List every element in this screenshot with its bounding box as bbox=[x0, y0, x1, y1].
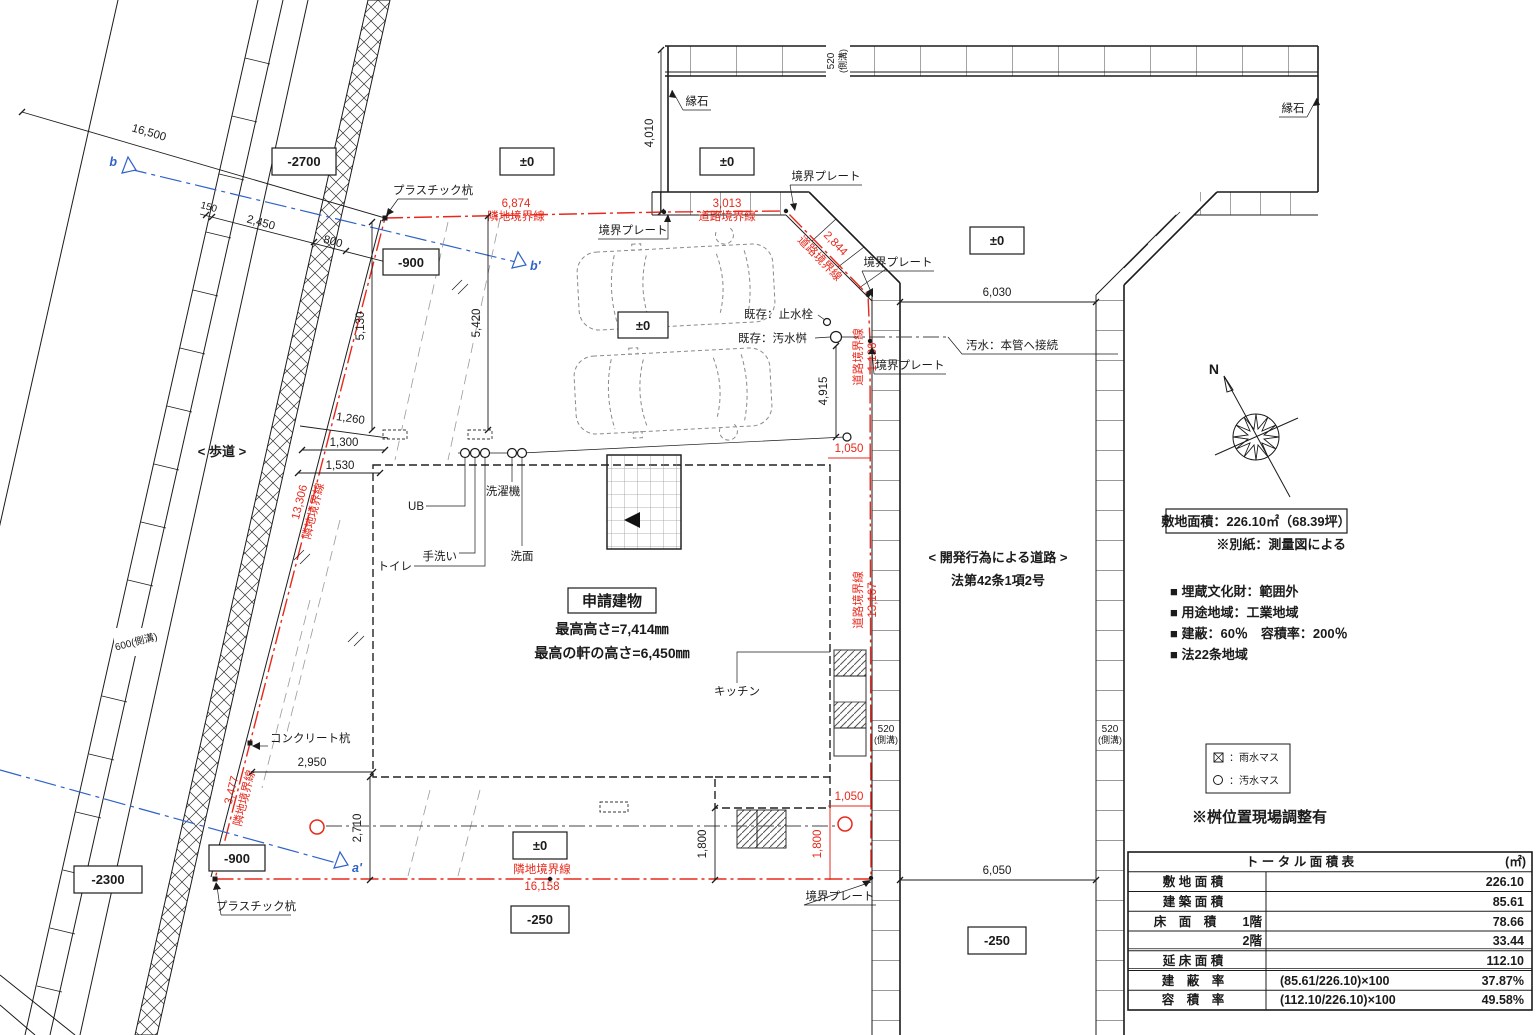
ground-marks bbox=[294, 280, 468, 646]
dim-4010: 4,010 bbox=[644, 119, 656, 148]
label-plate-1: 境界プレート bbox=[599, 223, 668, 237]
label-senmen: 洗面 bbox=[511, 550, 534, 563]
dim-13167: 13,167 bbox=[867, 582, 879, 617]
table-row-label: 敷 地 面 積 bbox=[1163, 874, 1224, 889]
level-box-0: -2700 bbox=[287, 154, 320, 169]
level-box-7: -2300 bbox=[91, 872, 124, 887]
label-tearai: 手洗い bbox=[423, 549, 458, 563]
dim-16158: 16,158 bbox=[524, 881, 559, 893]
gutter-road-left bbox=[872, 288, 900, 1035]
drain-point-toire bbox=[481, 449, 490, 458]
dim-1050-top: 1,050 bbox=[835, 443, 864, 455]
level-box-1: ±0 bbox=[520, 154, 534, 169]
table-row-label: 容 積 率 bbox=[1161, 992, 1225, 1007]
dim-3013: 3,013 bbox=[713, 198, 742, 210]
site-plan-drawing: < 歩道 > 600(側溝) 520 (側溝) 520 (側溝) 520 (側溝… bbox=[0, 0, 1536, 1035]
new-sewage-point bbox=[843, 433, 851, 441]
sewage-manhole-left bbox=[310, 820, 324, 834]
label-curb-left: 縁石 bbox=[686, 94, 709, 108]
drain-point-ub bbox=[461, 449, 470, 458]
table-row-label: 建 蔽 率 bbox=[1162, 973, 1225, 988]
dim-2950: 2,950 bbox=[298, 757, 327, 769]
drain-point-senmen bbox=[518, 449, 527, 458]
wheel-stop-3 bbox=[600, 802, 628, 812]
dim-1050-bottom: 1,050 bbox=[835, 791, 864, 803]
level-box-5: ±0 bbox=[636, 318, 650, 333]
gutter-road-right bbox=[1096, 288, 1124, 1035]
car-outline-1 bbox=[576, 237, 776, 337]
sidewalk-curb-strip bbox=[135, 0, 390, 1035]
drain-point-sentaku bbox=[508, 449, 517, 458]
section-flag-a2 bbox=[334, 852, 348, 868]
notes-group: 敷地面積：226.10㎡（68.39坪） ※別紙：測量図による ■ 埋蔵文化財：… bbox=[1161, 509, 1350, 826]
table-row-value: 78.66 bbox=[1493, 915, 1524, 929]
dim-5130: 5,130 bbox=[355, 312, 367, 341]
level-box-10: -250 bbox=[984, 933, 1010, 948]
table-row-value: 226.10 bbox=[1486, 875, 1524, 889]
dim-16500: 16,500 bbox=[130, 122, 167, 143]
label-toire: トイレ bbox=[378, 561, 413, 573]
dim-6030: 6,030 bbox=[983, 287, 1012, 299]
legend-sewage-label: ：汚水マス bbox=[1229, 774, 1279, 787]
building-height1: 最高高さ=7,414㎜ bbox=[555, 621, 668, 637]
table-row-sub: 2階 bbox=[1243, 933, 1263, 948]
table-row-value: 33.44 bbox=[1493, 934, 1524, 948]
label-sentakuki: 洗濯機 bbox=[486, 484, 521, 498]
entrance-steps bbox=[737, 810, 786, 848]
table-row-label: 延 床 面 積 bbox=[1162, 953, 1224, 968]
dim-1800-red: 1,800 bbox=[812, 830, 824, 859]
table-title: ト ー タ ル 面 積 表 bbox=[1246, 854, 1355, 869]
label-existing-sewage: 既存：汚水桝 bbox=[738, 331, 807, 345]
level-box-3: ±0 bbox=[990, 233, 1004, 248]
site-note-2: ■ 建蔽：60％ 容積率：200％ bbox=[1170, 626, 1348, 641]
section-label-b2: b' bbox=[530, 259, 542, 273]
label-kitchen: キッチン bbox=[714, 685, 760, 698]
label-plate-4: 境界プレート bbox=[876, 358, 945, 372]
sidewalk-label: < 歩道 > bbox=[198, 444, 247, 459]
gutter-right-diagonal bbox=[1096, 192, 1217, 295]
label-development-road: < 開発行為による道路 > bbox=[928, 550, 1067, 565]
building-name: 申請建物 bbox=[582, 592, 642, 610]
compass-group: N bbox=[1209, 361, 1298, 497]
dim-6050: 6,050 bbox=[983, 865, 1012, 877]
sewage-manhole-right bbox=[838, 817, 852, 831]
level-box-2: ±0 bbox=[720, 154, 734, 169]
table-row-value: 85.61 bbox=[1493, 895, 1524, 909]
stake-point-bottom bbox=[213, 877, 218, 882]
label-existing-valve: 既存：止水栓 bbox=[744, 307, 813, 321]
section-flag-b bbox=[122, 157, 136, 173]
turn-arrow-1 bbox=[715, 228, 733, 244]
boundary-label-adjacent-bottom: 隣地境界線 bbox=[513, 862, 571, 876]
compass-north-label: N bbox=[1209, 361, 1219, 377]
label-plastic-stake-bottom: プラスチック杭 bbox=[216, 899, 297, 913]
dim-1300: 1,300 bbox=[330, 437, 359, 449]
section-label-a2: a' bbox=[352, 861, 363, 875]
sewage-basin-icon bbox=[831, 332, 842, 343]
label-plate-3: 境界プレート bbox=[864, 255, 933, 269]
section-label-b: b bbox=[109, 155, 117, 169]
dim-1800: 1,800 bbox=[697, 830, 709, 859]
dim-2710: 2,710 bbox=[352, 814, 364, 843]
section-flag-b2 bbox=[512, 252, 526, 268]
drain-point-tearai bbox=[471, 449, 480, 458]
label-sewage-main: 汚水：本管へ接続 bbox=[966, 338, 1058, 352]
site-area-text: 敷地面積：226.10㎡（68.39坪） bbox=[1161, 514, 1350, 529]
label-concrete-stake: コンクリート杭 bbox=[270, 731, 351, 745]
gutter520-top-side: (側溝) bbox=[837, 49, 848, 73]
stake-point-mid bbox=[248, 741, 253, 746]
boundary-label-adjacent-top: 隣地境界線 bbox=[487, 209, 545, 223]
table-unit: (㎡) bbox=[1505, 854, 1526, 869]
level-box-8: ±0 bbox=[533, 838, 547, 853]
table-row-value: 49.58% bbox=[1482, 993, 1524, 1007]
gutter520-l-side: (側溝) bbox=[874, 734, 898, 745]
label-curb-right: 縁石 bbox=[1282, 101, 1305, 115]
building-group: 申請建物 最高高さ=7,414㎜ 最高の軒の高さ=6,450㎜ bbox=[373, 455, 866, 848]
table-row-label: 床 面 積 bbox=[1154, 914, 1217, 929]
fixtures-group: UB 洗濯機 手洗い トイレ 洗面 キッチン 既存：止水栓 既存：汚水桝 汚水：… bbox=[310, 307, 1118, 834]
gutter520-top-label: 520 bbox=[826, 52, 837, 69]
table-row-label: 建 築 面 積 bbox=[1163, 894, 1224, 909]
label-road-law: 法第42条1項2号 bbox=[951, 573, 1045, 588]
masu-note: ※桝位置現場調整有 bbox=[1192, 808, 1327, 826]
section-line-a bbox=[0, 770, 340, 864]
dim-4915: 4,915 bbox=[818, 377, 830, 406]
site-note-0: ■ 埋蔵文化財：範囲外 bbox=[1170, 584, 1298, 599]
area-table-group: ト ー タ ル 面 積 表 (㎡) 敷 地 面 積 226.10 建 築 面 積… bbox=[1128, 852, 1532, 1010]
boundary-label-road-right1: 道路境界線 bbox=[851, 328, 865, 386]
site-note-3: ■ 法22条地域 bbox=[1170, 647, 1248, 662]
boundary-label-road-top: 道路境界線 bbox=[698, 209, 756, 223]
label-ub: UB bbox=[408, 501, 424, 513]
label-plastic-stake-top: プラスチック杭 bbox=[393, 183, 474, 197]
dim-1530: 1,530 bbox=[326, 460, 355, 472]
label-plate-2: 境界プレート bbox=[792, 169, 861, 183]
level-box-4: -900 bbox=[398, 255, 424, 270]
legend-rain-label: ：雨水マス bbox=[1229, 752, 1279, 764]
site-area-ref: ※別紙：測量図による bbox=[1216, 537, 1346, 552]
dim-6874: 6,874 bbox=[502, 198, 531, 210]
dim-5420: 5,420 bbox=[471, 309, 483, 338]
parking-group bbox=[383, 228, 776, 812]
grid-panel bbox=[607, 455, 681, 549]
plan-canvas: < 歩道 > 600(側溝) 520 (側溝) 520 (側溝) 520 (側溝… bbox=[0, 0, 1536, 1035]
table-row-calc: (85.61/226.10)×100 bbox=[1280, 974, 1390, 988]
table-row-value: 112.10 bbox=[1486, 954, 1524, 968]
table-row-calc: (112.10/226.10)×100 bbox=[1280, 993, 1396, 1007]
level-box-9: -250 bbox=[527, 912, 553, 927]
gutter520-r-side: (側溝) bbox=[1098, 734, 1122, 745]
site-note-1: ■ 用途地域：工業地域 bbox=[1170, 605, 1298, 620]
table-row-sub: 1階 bbox=[1243, 914, 1263, 929]
wheel-stop-2 bbox=[468, 430, 492, 439]
boundary-label-road-right2: 道路境界線 bbox=[851, 571, 865, 629]
dim-1260: 1,260 bbox=[335, 411, 365, 427]
building-height2: 最高の軒の高さ=6,450㎜ bbox=[534, 645, 689, 661]
gutter520-r-label: 520 bbox=[1102, 724, 1119, 735]
car-outline-2 bbox=[573, 341, 773, 441]
dim-150: 150 bbox=[199, 200, 218, 215]
level-box-6: -900 bbox=[224, 851, 250, 866]
gutter520-l-label: 520 bbox=[878, 724, 895, 735]
table-row-value: 37.87% bbox=[1482, 974, 1524, 988]
